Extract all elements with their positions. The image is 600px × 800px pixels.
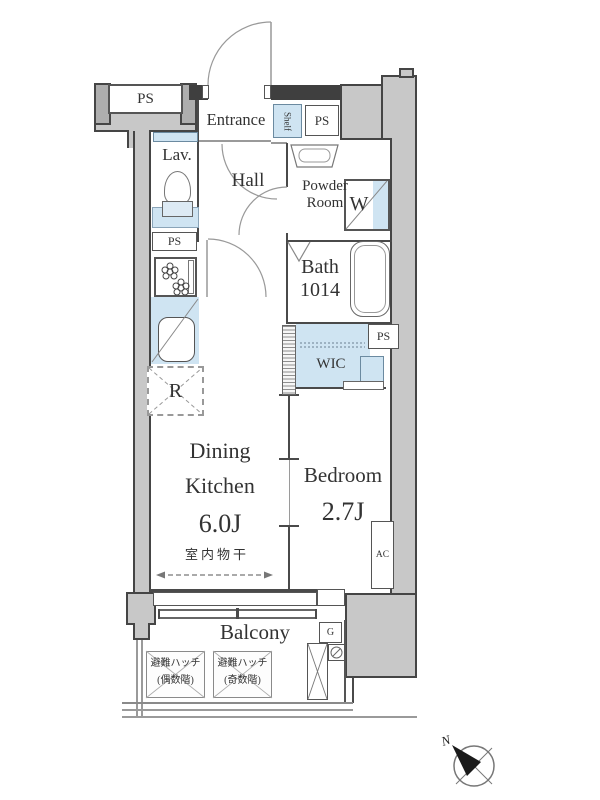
washer-blue-pan [373,181,388,229]
drying-arrow-left [156,572,165,579]
hatch-odd-line1: 避難ハッチ [218,658,268,669]
bathtub-inner [354,245,386,313]
balcony-edge-line-1 [122,702,353,704]
dining-kitchen-label: Dining Kitchen 6.0J [160,433,280,545]
wall-hall-powder-upper [286,143,288,187]
ac-label: AC [376,550,389,560]
bottom-right-block [345,593,417,678]
entrance-label: Entrance [196,111,276,130]
hatch-even-line1: 避難ハッチ [151,658,201,669]
hatch-odd-label: 避難ハッチ (奇数階) [213,655,272,689]
wic-accordion-door [282,325,296,395]
balcony-left-line-1 [136,640,138,717]
door-jamb-right [264,85,271,99]
right-wall-band [390,138,417,593]
powder-door-arc [239,187,287,235]
ps-lavatory-box: PS [152,232,197,251]
dining-size: 6.0J [199,509,242,538]
compass-icon: N [438,731,494,786]
bath-line2: 1014 [300,279,340,301]
drying-arrow-right [264,572,273,579]
hatch-even-line2: (偶数階) [157,675,194,686]
toilet-tank-icon [162,201,193,217]
bedroom-size: 2.7J [322,497,365,526]
kitchen-sink-icon [158,317,195,362]
partition-tick-1 [279,458,299,460]
ac-box: AC [371,521,394,589]
door-jamb-left [202,85,209,99]
hatch-even-label: 避難ハッチ (偶数階) [146,655,205,689]
bedroom-corner-wall [317,589,345,606]
sliding-door-panel [289,460,290,526]
gas-label: G [327,627,334,638]
refrigerator-label: R [169,380,182,403]
dining-line1: Dining [189,438,250,463]
top-right-block-b [381,75,417,140]
refrigerator-space: R [147,366,204,416]
ps-bath-label: PS [377,329,390,344]
entrance-powder-line [271,142,287,144]
entrance-door-arc [208,22,271,85]
balcony-edge-line-2 [122,709,353,711]
meter-box [328,644,345,661]
ps-topleft-box: PS [108,84,183,114]
compass-north-label: N [438,731,453,749]
ps-topleft-label: PS [137,91,154,108]
ps-entrance-label: PS [315,113,329,129]
shelf-cabinet: Shelf [273,104,302,138]
lavatory-label: Lav. [152,145,202,165]
entrance-step-line [199,140,271,142]
wall-bath-left [286,240,288,324]
window-post-right [315,609,317,619]
left-wall-foot-step [133,623,150,640]
powder-room-line2: Room [307,195,344,211]
indoor-drying-label: 室内物干 [172,548,262,563]
washer-label: W [346,193,372,216]
hatch-odd-line2: (奇数階) [224,675,261,686]
pipe-shaft-box [307,643,328,700]
bath-line1: Bath [301,256,339,278]
top-right-notch [399,68,414,78]
ps-bath-box: PS [368,324,399,349]
balcony-left-line-2 [141,640,143,717]
lav-shelf [153,132,198,142]
window-post-center [236,608,239,619]
wall-partition-top [288,395,290,460]
wall-partition-bottom [288,526,290,593]
gas-meter-box: G [319,622,342,643]
ps-entrance-box: PS [305,105,339,136]
powder-room-line1: Powder [302,178,348,194]
basin-bowl [299,149,330,162]
wic-label: WIC [305,356,357,373]
wall-top-right-seg [271,85,345,100]
top-right-block-a [340,84,383,140]
bottom-right-step-line [352,678,354,703]
toilet-bowl-icon [164,171,191,205]
bedroom-name: Bedroom [304,463,382,487]
floor-plan: PS PS R Shelf PS [0,0,600,800]
balcony-right-wall [344,620,346,702]
dining-line2: Kitchen [185,473,255,498]
stove-side-bar [188,260,194,294]
bedroom-label: Bedroom 2.7J [297,460,389,531]
wic-step [343,381,384,390]
bath-label: Bath 1014 [292,256,348,302]
window-post-left [158,609,160,619]
hall-label: Hall [221,170,275,192]
balcony-label: Balcony [212,620,298,644]
left-wall-band [133,131,151,592]
balcony-edge-line-3 [122,716,417,718]
shelf-label: Shelf [283,112,293,131]
ps-lavatory-label: PS [168,234,181,249]
window-sill [153,592,317,606]
left-wall-foot [126,592,156,625]
dk-door-arc [208,239,266,297]
wic-blue-cabinet [360,356,384,382]
basin-icon [291,145,338,167]
compass-needle [452,745,481,776]
partition-tick-2 [279,525,299,527]
